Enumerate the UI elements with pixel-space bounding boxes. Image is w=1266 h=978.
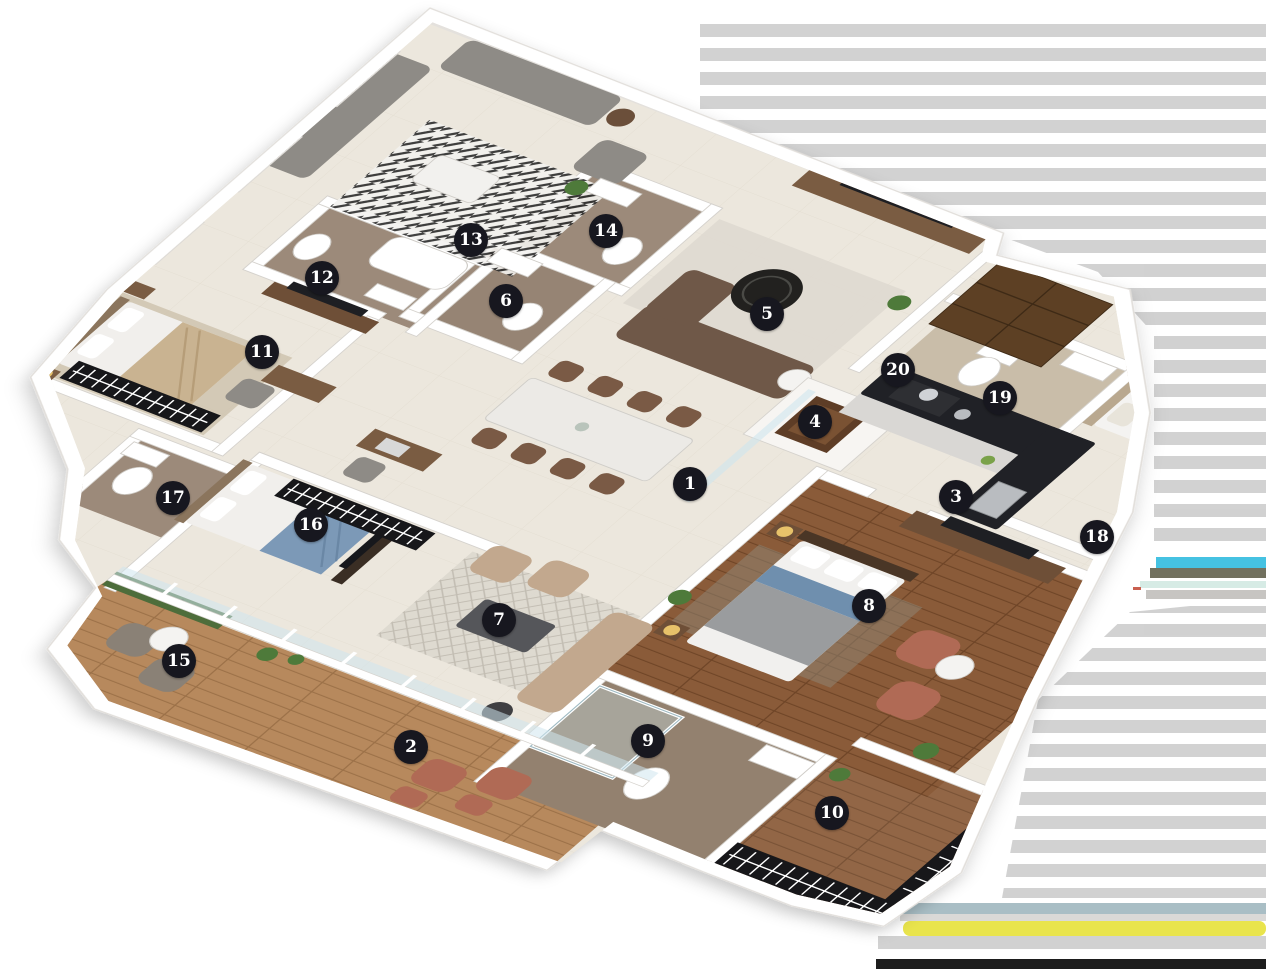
cyan-stripe (1156, 557, 1266, 568)
gray-stripe (1146, 590, 1266, 599)
black-stripe (876, 959, 1266, 969)
floor-plan-scene (0, 0, 1266, 978)
pale-teal-stripe (1140, 581, 1266, 588)
gray-stripe2 (900, 914, 1266, 921)
red-tick (1133, 587, 1141, 590)
olive-stripe (1150, 568, 1266, 578)
bluegray-stripe (902, 903, 1266, 914)
yellow-stripe (903, 921, 1266, 936)
floor-plan-image: 1234567891011121314151617181920 (0, 0, 1266, 978)
